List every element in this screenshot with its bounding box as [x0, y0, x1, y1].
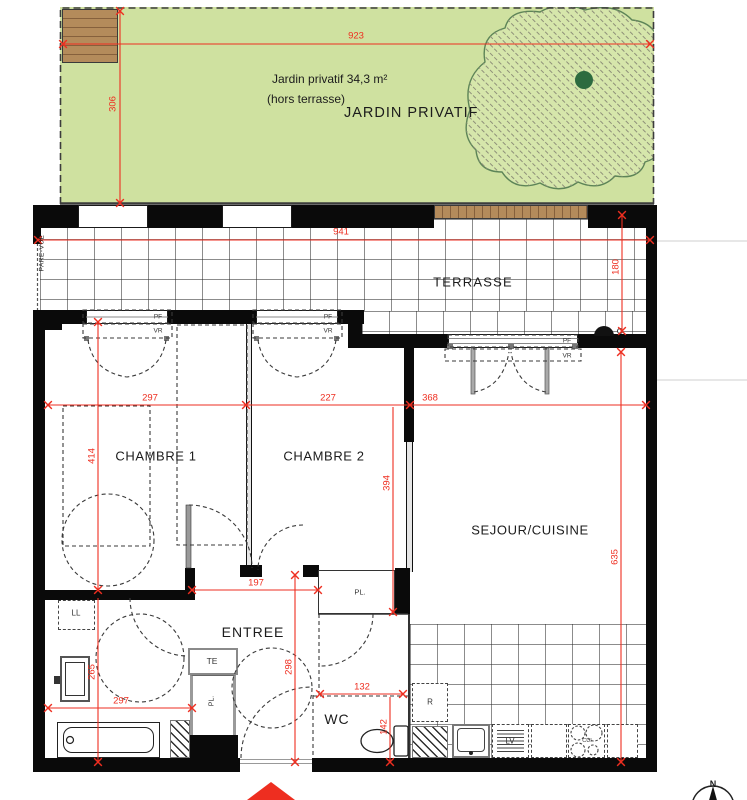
- dim-bath-height: 265: [87, 664, 98, 680]
- wc-label: WC: [324, 711, 349, 727]
- washer-tag: LL: [72, 609, 81, 618]
- closet-door-swing: [321, 614, 373, 666]
- bathroom-door-swing: [130, 598, 188, 656]
- garden-area-label: Jardin privatif 34,3 m²: [272, 72, 387, 86]
- entrance-arrow: [247, 782, 295, 800]
- closet-tag-vertical: PL.: [209, 696, 216, 707]
- garden-note-label: (hors terrasse): [267, 92, 345, 106]
- turning-circle: [96, 614, 184, 702]
- bathtub-drain: [67, 737, 74, 744]
- bed-outline: [63, 406, 150, 546]
- dim-wc-height: 142: [379, 719, 390, 735]
- bedroom2-door-swing: [258, 525, 303, 570]
- turning-circle: [62, 494, 154, 586]
- dim-terrace-height: 180: [611, 259, 622, 275]
- bedroom1-door-swing: [189, 505, 252, 568]
- electrical-tag: TE: [207, 656, 218, 666]
- pare-vue-label: PARE-VUE: [39, 235, 46, 272]
- bay-door-post: [545, 348, 549, 394]
- dim-bedroom1-height: 414: [87, 448, 98, 464]
- neighbour-lines: [657, 241, 747, 380]
- vr-tag: VR: [323, 328, 332, 335]
- dim-terrace-width: 941: [333, 227, 349, 238]
- bedroom1-window-swing: [88, 340, 166, 377]
- cooktop-tag: CUI: [582, 738, 591, 744]
- closet-tag: PL.: [354, 588, 365, 597]
- tree: [466, 5, 673, 188]
- terrace-column: [594, 326, 614, 336]
- dishwasher-tag: LV: [505, 737, 514, 746]
- dim-bath-width: 297: [113, 696, 129, 707]
- dim-bedroom1-width: 297: [142, 393, 158, 404]
- dim-wc-width: 132: [354, 682, 370, 693]
- entry-label: ENTREE: [222, 624, 285, 640]
- tree-trunk-dot: [575, 71, 593, 89]
- living-label: SEJOUR/CUISINE: [471, 523, 588, 538]
- dim-bedroom2-width: 227: [320, 393, 336, 404]
- bay-door-post: [471, 348, 475, 394]
- bedroom1-label: CHAMBRE 1: [115, 449, 196, 464]
- dim-living-width: 368: [422, 393, 438, 404]
- bay-door-swing: [474, 352, 546, 392]
- vr-tag: VR: [562, 353, 571, 360]
- vr-tag: VR: [153, 328, 162, 335]
- pf-tag: PF: [154, 314, 162, 321]
- dim-garden-height: 306: [108, 96, 119, 112]
- garden-name-label: JARDIN PRIVATIF: [344, 105, 479, 121]
- dim-entry-width: 197: [248, 578, 264, 589]
- dim-garden-width: 923: [348, 31, 364, 42]
- dim-bedroom2-height: 394: [382, 475, 393, 491]
- sink-faucet-dot: [469, 751, 473, 755]
- pf-tag: PF: [324, 314, 332, 321]
- north-label: N: [710, 779, 717, 789]
- fridge-tag: R: [427, 698, 433, 707]
- pf-tag: PF: [563, 338, 571, 345]
- bedroom2-label: CHAMBRE 2: [283, 449, 364, 464]
- dim-living-height: 635: [610, 549, 621, 565]
- bedroom2-window-swing: [258, 340, 336, 377]
- terrace-label: TERRASSE: [433, 275, 513, 290]
- dim-entry-height: 298: [284, 659, 295, 675]
- floor-plan: Jardin privatif 34,3 m² (hors terrasse) …: [0, 0, 747, 800]
- bedroom1-door-leaf: [186, 505, 191, 568]
